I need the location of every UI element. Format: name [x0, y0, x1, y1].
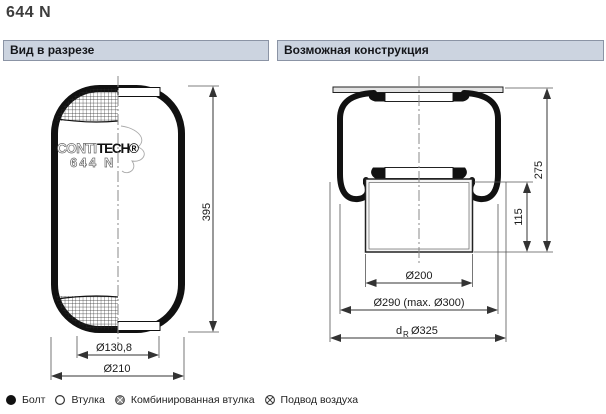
- brand-logo-outline: CONTI: [57, 141, 97, 156]
- combined-bushing-icon: [114, 394, 126, 406]
- piston-bead-clamp-right: [453, 168, 467, 180]
- air-supply-icon: [264, 394, 276, 406]
- bead-plate-slot-bottom: [118, 322, 160, 331]
- page-title: 644 N: [6, 4, 51, 22]
- legend-label: Комбинированная втулка: [131, 394, 255, 406]
- bead-plate-slot-top: [118, 88, 160, 97]
- dimension-label-outer-dia: Ø210: [104, 363, 131, 375]
- brand-logo-model: 644 N: [70, 155, 116, 170]
- dimension-label-plate-dia: Ø290 (max. Ø300): [373, 297, 464, 309]
- section-header-label: Вид в разрезе: [10, 43, 94, 57]
- dimension-label-height: 395: [201, 203, 213, 221]
- dimension-label-rim-value: Ø325: [411, 325, 438, 337]
- bolt-icon: [5, 394, 17, 406]
- dimension-label-total-height: 275: [533, 161, 545, 179]
- section-header-sectional-view: Вид в разрезе: [3, 40, 269, 61]
- piston-bead-clamp-left: [371, 168, 385, 180]
- bushing-icon: [54, 394, 66, 406]
- top-plate: [333, 87, 503, 93]
- dimension-label-rim-subscript: R: [403, 330, 409, 339]
- legend-label: Болт: [22, 394, 45, 406]
- legend-item-bushing: Втулка: [54, 394, 104, 406]
- sectional-view-drawing: CONTI TECH® 644 N 395 Ø130,8 Ø210: [0, 62, 270, 392]
- section-header-possible-construction: Возможная конструкция: [277, 40, 604, 61]
- dimension-label-rim-prefix: d: [396, 325, 402, 337]
- legend-label: Подвод воздуха: [281, 394, 359, 406]
- legend: Болт Втулка Комбинированная втулка Подво…: [5, 392, 367, 408]
- dimension-label-piston-dia: Ø200: [406, 270, 433, 282]
- legend-item-combined-bushing: Комбинированная втулка: [114, 394, 255, 406]
- assembly-drawing: 275 115 Ø200 Ø290 (max. Ø300) d R Ø325: [270, 62, 606, 392]
- legend-label: Втулка: [71, 394, 104, 406]
- legend-item-bolt: Болт: [5, 394, 45, 406]
- section-header-label: Возможная конструкция: [284, 43, 429, 57]
- dimension-label-piston-height: 115: [513, 208, 525, 226]
- dimension-label-bead-dia: Ø130,8: [96, 342, 132, 354]
- legend-item-air-supply: Подвод воздуха: [264, 394, 359, 406]
